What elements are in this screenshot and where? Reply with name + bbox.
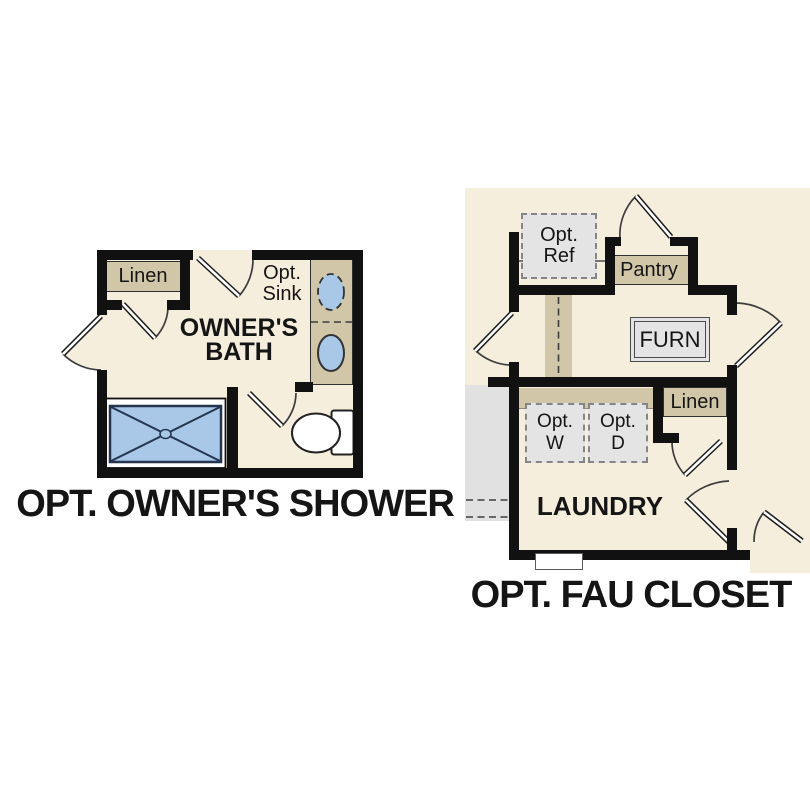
linen-label-left-plan: Linen [105,261,181,292]
shower-icon [105,399,226,469]
threshold [535,553,583,570]
linen-label-right-plan: Linen [663,387,727,417]
opt-dryer-label: Opt. D [588,403,648,463]
opt-sink-label: Opt. Sink [252,262,312,306]
wall-segment [97,300,122,310]
opt-ref-label: Opt. Ref [521,213,597,279]
pantry-label: Pantry [608,255,690,285]
wall-segment [97,250,193,260]
left-plan-title: OPT. OWNER'S SHOWER [15,483,455,526]
optional-sink-icon [318,274,344,310]
wall-segment [605,237,621,246]
wall-segment [167,300,190,310]
opt-washer-label: Opt. W [525,403,585,463]
owners-bath-label: OWNER'S BATH [163,314,315,366]
wall-segment [488,377,737,387]
wall-segment [252,250,363,260]
wall-segment [509,232,519,312]
wall-segment [727,293,737,315]
wall-segment [295,382,313,392]
wall-segment [227,387,238,478]
pantry-door-swing [620,196,671,239]
wall-segment [727,528,737,550]
wall-segment [727,377,737,470]
sink-icon [318,335,344,371]
shower-drain-icon [160,430,171,439]
wall-segment [97,370,107,478]
wall-segment [509,387,519,560]
wall-segment [653,433,679,443]
wall-segment [509,285,615,295]
right-plan-title: OPT. FAU CLOSET [451,574,810,617]
wall-segment [353,250,363,478]
floorplan-canvas: FURN [0,0,810,810]
laundry-label: LAUNDRY [510,492,690,520]
toilet-icon [292,411,354,455]
stair-dashes [466,500,509,517]
